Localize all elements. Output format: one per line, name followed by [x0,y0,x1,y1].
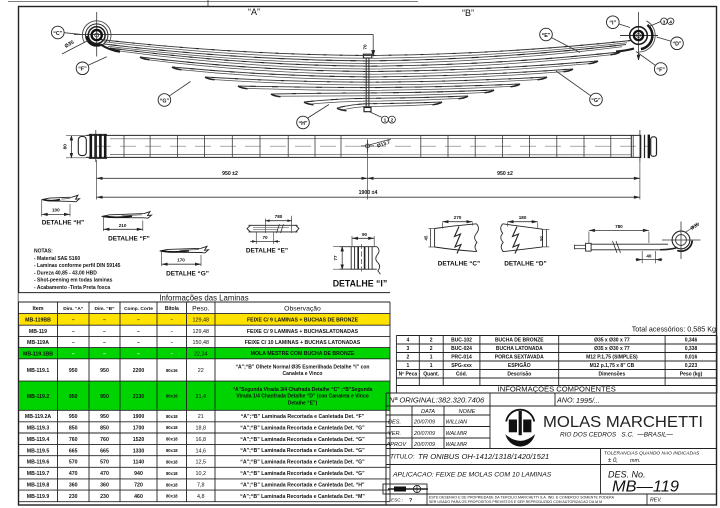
svg-text:ANO:: ANO: [556,395,575,404]
svg-text:22: 22 [198,368,204,374]
svg-text:7,8: 7,8 [197,483,205,489]
svg-text:80x18: 80x18 [166,437,178,442]
svg-text:MB-119.2A: MB-119.2A [25,414,51,420]
svg-text:80: 80 [63,144,69,150]
svg-text:570: 570 [100,460,109,466]
svg-text:“C”: “C” [53,31,62,37]
svg-text:Dimensões: Dimensões [599,372,626,378]
svg-text:70: 70 [262,235,268,240]
svg-text:Cód.: Cód. [456,372,468,378]
svg-text:DES.: DES. [388,420,401,426]
svg-text:2: 2 [430,346,433,352]
svg-text:760: 760 [100,437,109,443]
svg-text:“I”: “I” [609,21,616,27]
svg-text:950: 950 [69,368,78,374]
svg-text:Bitola: Bitola [165,306,179,312]
svg-text:PRC-014: PRC-014 [451,355,472,361]
svg-text:MB-119: MB-119 [29,329,47,335]
svg-text:460: 460 [134,494,143,500]
svg-text:Comp. Corte: Comp. Corte [124,306,153,312]
svg-text:–: – [137,340,140,346]
svg-text:–: – [137,318,140,324]
svg-text:760: 760 [69,437,78,443]
svg-text:“A”Segunda Virada 3/4 Chafrada: “A”Segunda Virada 3/4 Chafrada Detalhe “… [233,387,373,393]
svg-text:TITULO:: TITULO: [390,454,415,461]
svg-text:80x18: 80x18 [166,459,178,464]
svg-text:780: 780 [275,214,283,219]
svg-text:360: 360 [100,483,109,489]
svg-text:12,5: 12,5 [196,460,207,466]
svg-text:80x16: 80x16 [166,394,178,399]
svg-text:2: 2 [391,118,394,124]
svg-text:0,016: 0,016 [685,355,698,361]
svg-text:950: 950 [69,394,78,400]
svg-text:–: – [103,318,106,324]
svg-text:1: 1 [430,363,433,369]
svg-text:“A”;“B” Laminada Recortada e C: “A”;“B” Laminada Recortada e Canletada D… [240,460,365,466]
svg-text:SPG-xxx: SPG-xxx [451,363,472,369]
svg-text:2: 2 [430,338,433,344]
svg-text:VER.: VER. [388,431,401,437]
svg-text:ESTE DESENHO E DE PROPRIEDADE: ESTE DESENHO E DE PROPRIEDADE DA TERCILI… [429,496,615,500]
svg-text:MB-119.2: MB-119.2 [27,394,50,400]
svg-text:720: 720 [134,483,143,489]
svg-text:780: 780 [615,224,623,229]
svg-text:BUCHA LATONADA: BUCHA LATONADA [496,346,543,352]
svg-text:FEIXE C/ 9 LAMINAS + BUCHAS DE: FEIXE C/ 9 LAMINAS + BUCHAS DE BRONZE [247,317,359,323]
svg-text:1: 1 [430,355,433,361]
svg-text:77: 77 [333,255,338,261]
svg-text:665: 665 [69,448,78,454]
svg-text:SER USADO PARA OS PROPOSITOS P: SER USADO PARA OS PROPOSITOS PREVISTOS E… [429,500,602,504]
svg-text:Detalhe “E”): Detalhe “E”) [288,400,318,406]
svg-text:80x16: 80x16 [166,368,178,373]
svg-text:850: 850 [100,426,109,432]
svg-text:“F”: “F” [78,67,87,73]
svg-text:170: 170 [177,258,185,263]
svg-text:4: 4 [669,19,672,25]
svg-text:470: 470 [100,471,109,477]
svg-text:Nª ORIGINAL:382.320.7406: Nª ORIGINAL:382.320.7406 [389,395,485,404]
svg-text:950: 950 [100,414,109,420]
svg-text:18,8: 18,8 [196,426,207,432]
svg-text:665: 665 [100,448,109,454]
svg-text:1900: 1900 [133,414,145,420]
svg-text:2130: 2130 [133,394,145,400]
svg-text:16,8: 16,8 [196,437,207,443]
svg-text:“G”: “G” [591,98,601,104]
svg-text:950: 950 [100,394,109,400]
svg-text:“H”: “H” [298,121,307,127]
svg-text:470: 470 [69,471,78,477]
svg-text:150,48: 150,48 [193,340,210,346]
svg-text:DETALHE “E”: DETALHE “E” [246,248,288,255]
svg-text:TOLERANCIAS QUANDO NAO INDICAD: TOLERANCIAS QUANDO NAO INDICADAS [604,450,700,456]
svg-text:Descrisão: Descrisão [507,372,531,378]
svg-text:Informações das Laminas: Informações das Laminas [159,293,248,302]
svg-text:WALMIR: WALMIR [446,442,468,448]
svg-text:Item: Item [32,306,43,312]
svg-text:80x18: 80x18 [166,414,178,419]
svg-text:50: 50 [539,236,544,241]
svg-text:Ø35 x Ø30 x 77: Ø35 x Ø30 x 77 [594,346,630,352]
svg-text:MB-119.9: MB-119.9 [27,494,50,500]
svg-text:RIO DOS CEDROS S.C. —BRASIL: RIO DOS CEDROS S.C. —BRASIL— [560,432,674,439]
svg-text:?: ? [409,498,412,504]
svg-text:DETALHE “H”: DETALHE “H” [42,220,84,227]
svg-text:- Shot-peening em todas lamina: - Shot-peening em todas laminas [34,278,113,284]
svg-text:ESPIGÃO: ESPIGÃO [508,362,531,369]
svg-text:M12 p.1,75 x 8" CB: M12 p.1,75 x 8" CB [590,363,635,369]
svg-text:950 ±2: 950 ±2 [497,171,513,177]
svg-text:–: – [103,351,106,357]
svg-text:2200: 2200 [133,368,145,374]
svg-text:MOLA MESTRE COM BUCHA DE BRONZ: MOLA MESTRE COM BUCHA DE BRONZE [251,351,355,357]
svg-text:210: 210 [119,223,127,228]
svg-text:Peso.: Peso. [192,306,209,313]
svg-text:DETALHE “C”: DETALHE “C” [438,261,480,268]
svg-text:Dim. “A”: Dim. “A” [63,306,84,312]
svg-text:22,34: 22,34 [194,351,208,357]
svg-text:230: 230 [69,494,78,500]
svg-text:–: – [137,351,140,357]
svg-text:3: 3 [407,346,410,352]
svg-text:1900 ±4: 1900 ±4 [359,190,378,196]
svg-text:“A”;“B” Laminada Recortada e C: “A”;“B” Laminada Recortada e Canletada D… [240,437,365,443]
svg-text:0,338: 0,338 [685,346,698,352]
svg-text:80x18: 80x18 [166,494,178,499]
svg-text:950 ±2: 950 ±2 [222,171,238,177]
svg-text:“D”: “D” [672,42,681,48]
svg-text:80x18: 80x18 [166,482,178,487]
svg-text:- Laminas conforme perfil DIN: - Laminas conforme perfil DIN 59145 [34,263,121,269]
svg-text:“B”: “B” [462,8,474,18]
svg-text:M12 P.1,75 (SIMPLES): M12 P.1,75 (SIMPLES) [586,355,638,361]
svg-text:MB-119.1: MB-119.1 [27,368,50,374]
svg-text:APROV: APROV [386,442,408,448]
svg-text:mm.: mm. [630,458,640,464]
svg-text:2: 2 [407,355,410,361]
svg-text:“E”: “E” [542,33,551,39]
svg-text:MB-119.6: MB-119.6 [27,460,50,466]
svg-text:FEIXE C/ 10 LAMINAS + BUCHAS L: FEIXE C/ 10 LAMINAS + BUCHAS LATONADAS [245,340,361,346]
svg-text:Canaleta e Vinco: Canaleta e Vinco [283,371,323,377]
svg-text:0,223: 0,223 [685,363,698,369]
svg-text:–: – [103,329,106,335]
svg-text:Ø35 x Ø30 x 77: Ø35 x Ø30 x 77 [594,338,630,344]
svg-text:20/07/09: 20/07/09 [413,420,435,426]
svg-text:950: 950 [69,414,78,420]
svg-text:DETALHE “D”: DETALHE “D” [504,261,546,268]
svg-text:570: 570 [69,460,78,466]
svg-text:MB-119.7: MB-119.7 [27,471,50,477]
svg-text:INFORMAÇÕES COMPONENTES: INFORMAÇÕES COMPONENTES [498,384,616,393]
svg-text:Observação: Observação [284,306,321,313]
svg-text:1330: 1330 [133,448,145,454]
svg-text:Virada 1/4 Chanfrada Detalhe “: Virada 1/4 Chanfrada Detalhe “D” (con Ca… [236,394,368,400]
svg-text:1520: 1520 [133,437,145,443]
svg-text:4: 4 [407,338,410,344]
svg-text:MB-119.4: MB-119.4 [27,437,50,443]
svg-text:“A”;“B” Laminada Recortada e C: “A”;“B” Laminada Recortada e Canletada D… [240,448,365,454]
svg-text:± 0,: ± 0, [608,458,618,464]
svg-text:–: – [137,329,140,335]
svg-text:MB-119BB: MB-119BB [25,318,51,324]
svg-text:NOTAS:: NOTAS: [34,249,53,255]
svg-text:“F”: “F” [656,67,665,73]
svg-text:1140: 1140 [133,460,144,466]
svg-text:100: 100 [52,208,60,213]
svg-text:129,48: 129,48 [193,329,210,335]
svg-text:ESC.:: ESC.: [391,498,404,503]
svg-text:70: 70 [363,44,368,50]
svg-text:PORCA SEXTAVADA: PORCA SEXTAVADA [495,355,544,361]
svg-text:FEIXE C/ 9 LAMINAS + BUCHASLAT: FEIXE C/ 9 LAMINAS + BUCHASLATONADAS [247,329,359,335]
svg-text:DATA: DATA [421,409,435,415]
svg-text:1995/...: 1995/... [576,396,600,405]
svg-text:BUC-024: BUC-024 [451,346,472,352]
svg-text:80x18: 80x18 [166,471,178,476]
svg-text:TR ONIBUS OH-1412/1318/1420/15: TR ONIBUS OH-1412/1318/1420/1521 [418,452,549,461]
svg-text:0,346: 0,346 [685,338,698,344]
svg-text:DETALHE “G”: DETALHE “G” [166,271,209,278]
svg-text:Nº Peca: Nº Peca [399,372,418,378]
svg-text:WALMIR: WALMIR [446,431,468,437]
svg-text:1700: 1700 [133,426,145,432]
svg-text:WILLIAN: WILLIAN [446,420,468,426]
svg-text:MB-119.8: MB-119.8 [27,483,50,489]
svg-text:21,4: 21,4 [196,394,207,400]
svg-text:129,48: 129,48 [193,318,210,324]
svg-text:–: – [72,318,75,324]
svg-text:- Material SAE 5160: - Material SAE 5160 [34,256,80,262]
svg-text:MB-119A: MB-119A [27,340,49,346]
svg-text:“A”: “A” [248,7,260,17]
svg-text:950: 950 [100,368,109,374]
svg-text:MB-119.5: MB-119.5 [27,448,50,454]
svg-text:“G”: “G” [160,98,170,104]
svg-text:BUCHA DE BRONZE: BUCHA DE BRONZE [495,338,544,344]
svg-text:21: 21 [198,414,204,420]
svg-text:940: 940 [134,471,143,477]
svg-text:–: – [72,340,75,346]
svg-text:40: 40 [646,253,652,258]
svg-text:“A”;“B” Olhete Normal Ø35 Esme: “A”;“B” Olhete Normal Ø35 Esmerilhada De… [236,365,370,371]
svg-text:10,2: 10,2 [196,471,207,477]
svg-text:MB—119: MB—119 [612,479,679,496]
svg-text:270: 270 [454,215,462,220]
svg-text:20/07/09: 20/07/09 [413,442,435,448]
svg-text:360: 360 [69,483,78,489]
svg-text:- Acabamento -Tinta Preta fosc: - Acabamento -Tinta Preta fosca [34,285,110,291]
svg-text:Total acessórios: 0,585 Kg: Total acessórios: 0,585 Kg [632,325,716,334]
svg-text:- Dureza 40,85 - 43,00 HBD: - Dureza 40,85 - 43,00 HBD [34,270,97,276]
svg-text:“A”;“B” Laminada Recortada e C: “A”;“B” Laminada Recortada e Canletada D… [240,494,365,500]
svg-text:45: 45 [424,235,429,240]
svg-text:Quant.: Quant. [423,372,439,378]
svg-text:REV.: REV. [650,498,662,504]
svg-text:4,8: 4,8 [197,494,205,500]
svg-text:MOLAS MARCHETTI: MOLAS MARCHETTI [543,414,703,431]
svg-text:–: – [72,329,75,335]
svg-text:180: 180 [519,215,527,220]
svg-text:–: – [103,340,106,346]
svg-text:Dim. “B”: Dim. “B” [95,306,116,312]
svg-text:APLICACAO: FEIXE DE MOLAS COM: APLICACAO: FEIXE DE MOLAS COM 10 LAMINAS [392,472,552,479]
svg-text:NOME: NOME [459,409,476,415]
svg-text:1: 1 [384,118,387,124]
svg-text:230: 230 [100,494,109,500]
svg-text:20/07/09: 20/07/09 [413,431,435,437]
svg-text:DETALHE “F”: DETALHE “F” [108,236,150,243]
svg-text:80x18: 80x18 [166,425,178,430]
svg-text:Peso (kg): Peso (kg) [680,372,703,378]
svg-text:850: 850 [69,426,78,432]
svg-text:“A”;“B” Laminada Recortada e C: “A”;“B” Laminada Recortada e Canletada D… [241,414,365,420]
svg-text:14,6: 14,6 [196,448,207,454]
svg-text:3: 3 [663,19,666,25]
svg-text:DETALHE “I”: DETALHE “I” [333,279,388,289]
svg-text:“A”;“B” Laminada Recortada e C: “A”;“B” Laminada Recortada e Canletada D… [240,483,365,489]
svg-text:BUC-102: BUC-102 [451,338,472,344]
svg-text:“A”;“B” Laminada Recortada e C: “A”;“B” Laminada Recortada e Canletada D… [240,471,365,477]
svg-text:“A”;“B” Laminada Recortada e C: “A”;“B” Laminada Recortada e Canletada D… [240,425,365,431]
svg-text:80x18: 80x18 [166,448,178,453]
svg-text:MB-119.3: MB-119.3 [27,426,50,432]
svg-text:1: 1 [407,363,410,369]
svg-text:90: 90 [362,232,368,237]
svg-text:MB-119.1BB: MB-119.1BB [23,351,53,357]
svg-text:–: – [72,351,75,357]
